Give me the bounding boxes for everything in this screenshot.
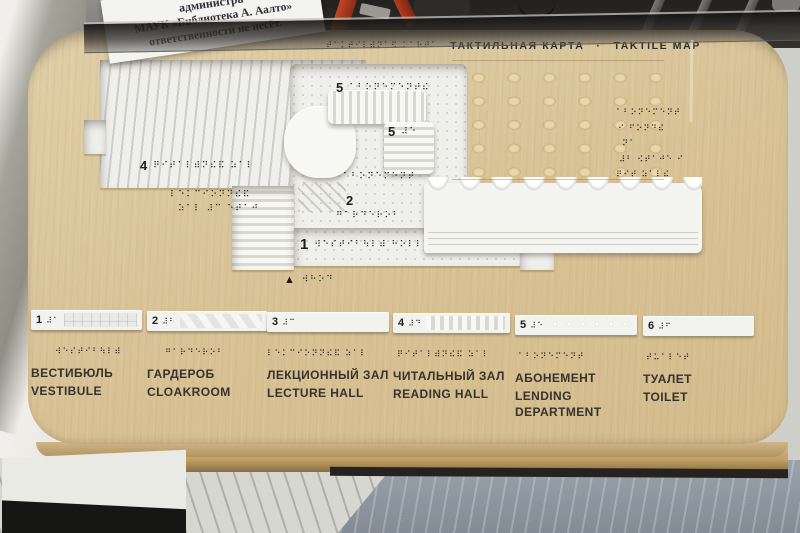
room-number: 5 [388, 124, 395, 139]
legend-braille: ⠁⠃⠕⠝⠑⠍⠑⠝⠞ [518, 352, 637, 362]
bar-braille: ⠼⠋ [658, 322, 672, 331]
bar-braille: ⠼⠃ [162, 317, 176, 326]
legend-braille: ⠇⠑⠅⠉⠊⠕⠝⠝⠮⠯ ⠵⠁⠇ [267, 349, 389, 359]
bar-braille: ⠼⠙ [408, 319, 422, 328]
legend-label-en: VESTIBULE [31, 383, 142, 399]
model-ramp [424, 183, 702, 253]
braille-line: ⠟⠊⠞ ⠵⠁⠇⠮ [616, 168, 726, 184]
legend-label-ru: ВЕСТИБЮЛЬ [31, 365, 142, 381]
braille-line: ⠁⠃⠕⠝⠑⠍⠑⠝⠞ [616, 106, 726, 122]
bar-braille: ⠼⠁ [46, 316, 60, 325]
legend-braille: ⠺⠑⠎⠞⠊⠃⠳⠇⠾ [55, 347, 142, 357]
room-braille: ⠁⠃⠕⠝⠑⠍⠑⠝⠞⠮ [349, 83, 430, 93]
bar-braille: ⠼⠉ [282, 318, 296, 327]
room-braille: ⠼⠑ [401, 127, 417, 137]
room-number: 1 [300, 236, 308, 253]
right-braille-block: ⠁⠃⠕⠝⠑⠍⠑⠝⠞ ⠊ ⠋⠕⠝⠙⠮ ⠝⠁ ⠼⠃ ⠪⠞⠁⠚⠑ ⠊ ⠟⠊⠞ ⠵⠁⠇⠮ [616, 106, 726, 184]
entrance-braille: ⠺⠓⠕⠙ [302, 275, 334, 285]
braille-line: ⠊ ⠋⠕⠝⠙⠮ [618, 122, 726, 138]
label-room4: 4 ⠟⠊⠞⠁⠇⠾⠝⠮⠯ ⠵⠁⠇ [140, 158, 255, 173]
legend-label-en: READING HALL [393, 386, 510, 402]
legend-label-ru: ЛЕКЦИОННЫЙ ЗАЛ [267, 367, 389, 383]
legend-label-en: LENDING DEPARTMENT [515, 388, 619, 420]
legend-braille: ⠞⠥⠁⠇⠑⠞ [646, 353, 754, 363]
legend-item-cloakroom: 2 ⠼⠃ ⠛⠁⠗⠙⠑⠗⠕⠃ ГАРДЕРОБ CLOAKROOM [147, 311, 267, 400]
model-stair-run-upper [328, 90, 426, 124]
ramp-lines [428, 227, 698, 245]
legend-item-lecture-hall: 3 ⠼⠉ ⠇⠑⠅⠉⠊⠕⠝⠝⠮⠯ ⠵⠁⠇ ЛЕКЦИОННЫЙ ЗАЛ LECTU… [267, 312, 389, 401]
legend-item-vestibule: 1 ⠼⠁ ⠺⠑⠎⠞⠊⠃⠳⠇⠾ ВЕСТИБЮЛЬ VESTIBULE [31, 310, 142, 399]
legend-braille: ⠛⠁⠗⠙⠑⠗⠕⠃ [165, 348, 267, 358]
bar-number: 4 [398, 317, 404, 329]
wood-braille-line-2: ⠵⠁⠇ ⠼⠉ ⠑⠞⠁⠚ [178, 204, 260, 214]
bar-texture-waffle [64, 313, 137, 327]
model-hatch-texture [298, 182, 346, 212]
bar-number: 1 [36, 314, 42, 326]
braille-line: ⠝⠁ [622, 137, 726, 153]
bar-texture-smooth [676, 319, 749, 333]
bar-number: 5 [520, 319, 526, 331]
label-room2-braille: ⠛⠁⠗⠙⠑⠗⠕⠃ [336, 211, 401, 221]
tactile-bar: 5 ⠼⠑ [515, 315, 637, 335]
legend-label-en: TOILET [643, 389, 754, 405]
label-mid-braille: ⠁⠃⠕⠝⠑⠍⠑⠝⠞ [343, 172, 416, 182]
tactile-bar: 6 ⠼⠋ [643, 316, 754, 336]
room-number: 5 [336, 80, 343, 95]
entrance-triangle-icon: ▲ [284, 274, 295, 286]
label-room1: 1 ⠺⠑⠎⠞⠊⠃⠳⠇⠾ ⠓⠕⠇⠇ [300, 236, 424, 253]
entrance-marker: ▲ ⠺⠓⠕⠙ [284, 274, 334, 286]
legend-label-ru: АБОНЕМЕНТ [515, 370, 637, 386]
label-room2: 2 [346, 193, 353, 208]
photo-scene: ⠞⠁⠅⠞⠊⠇⠾⠝⠁⠫ ⠅⠁⠗⠞⠁ ТАКТИЛЬНАЯ КАРТА · TAKT… [0, 0, 800, 533]
room-number: 2 [346, 193, 353, 208]
bar-number: 6 [648, 320, 654, 332]
wall-column [2, 448, 186, 533]
bar-texture-diagonal [180, 314, 262, 328]
legend-label-ru: ТУАЛЕТ [643, 371, 754, 387]
legend-label-en: LECTURE HALL [267, 385, 389, 401]
bar-number: 2 [152, 315, 158, 327]
tactile-bar: 4 ⠼⠙ [393, 313, 510, 333]
bar-texture-smooth [300, 315, 384, 329]
tactile-bar: 2 ⠼⠃ [147, 311, 267, 331]
wood-braille-line-1: ⠇⠑⠅⠉⠊⠕⠝⠝⠮⠯ [170, 190, 251, 200]
room-braille: ⠟⠊⠞⠁⠇⠾⠝⠮⠯ ⠵⠁⠇ [153, 161, 254, 171]
braille-line: ⠼⠃ ⠪⠞⠁⠚⠑ ⠊ [619, 153, 726, 169]
bar-braille: ⠼⠑ [530, 321, 544, 330]
bar-number: 3 [272, 316, 278, 328]
tactile-bar: 3 ⠼⠉ [267, 312, 389, 332]
label-room5-side: 5 ⠼⠑ [388, 124, 417, 139]
legend-item-toilet: 6 ⠼⠋ ⠞⠥⠁⠇⠑⠞ ТУАЛЕТ TOILET [643, 316, 754, 405]
legend-braille: ⠟⠊⠞⠁⠇⠾⠝⠮⠯ ⠵⠁⠇ [397, 350, 510, 360]
legend-item-reading-hall: 4 ⠼⠙ ⠟⠊⠞⠁⠇⠾⠝⠮⠯ ⠵⠁⠇ ЧИТАЛЬНЫЙ ЗАЛ READING… [393, 313, 510, 402]
room-braille: ⠺⠑⠎⠞⠊⠃⠳⠇⠾ ⠓⠕⠇⠇ [314, 240, 424, 250]
legend-label-en: CLOAKROOM [147, 384, 267, 400]
legend-label-ru: ГАРДЕРОБ [147, 366, 267, 382]
bar-texture-dots [548, 318, 632, 332]
label-room5-top: 5 ⠁⠃⠕⠝⠑⠍⠑⠝⠞⠮ [336, 80, 430, 95]
model-room-niche [84, 120, 106, 154]
legend-label-ru: ЧИТАЛЬНЫЙ ЗАЛ [393, 368, 510, 384]
tactile-bar: 1 ⠼⠁ [31, 310, 142, 330]
column-plinth [2, 499, 186, 533]
legend-item-lending: 5 ⠼⠑ ⠁⠃⠕⠝⠑⠍⠑⠝⠞ АБОНЕМЕНТ LENDING DEPARTM… [515, 315, 637, 420]
room-number: 4 [140, 158, 147, 173]
dark-object [414, 0, 470, 17]
bar-texture-ridges [426, 316, 505, 330]
tactile-map-board: ⠞⠁⠅⠞⠊⠇⠾⠝⠁⠫ ⠅⠁⠗⠞⠁ ТАКТИЛЬНАЯ КАРТА · TAKT… [28, 30, 788, 444]
